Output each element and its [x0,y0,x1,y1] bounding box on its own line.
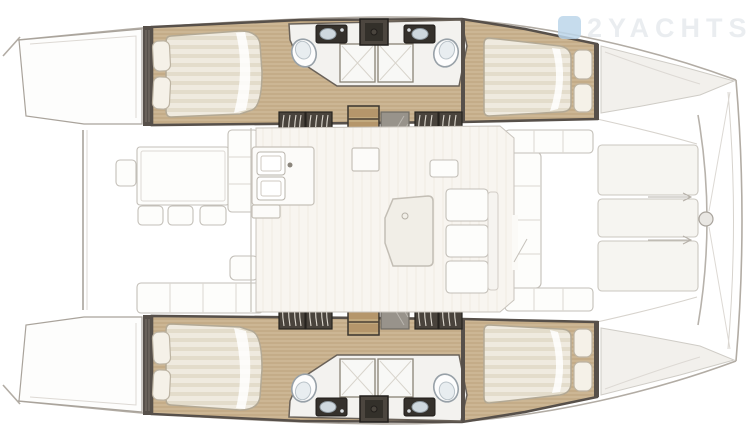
cockpit-chair [168,206,193,225]
cockpit-seat [230,256,258,280]
forepeak [601,46,734,113]
cabin-bulkhead [461,20,465,122]
salon-table [385,196,433,266]
bow-outline [736,80,742,361]
floor-plan-canvas: catamaran-top-view Aft cockpit: dining t… [0,0,750,441]
settee-backrest [488,192,498,290]
foredeck-panel [598,199,698,237]
forward-cockpit: Forward cockpit C-shaped seating [505,130,593,311]
watermark: 2YACHTS [558,13,750,43]
windlass-fitting [699,212,713,226]
stern-line-port [3,37,20,56]
galley-counter [252,205,280,218]
forward-door-opening [512,215,518,270]
aft-cabin-bed [152,31,262,117]
sink-unit [316,25,347,43]
forepeak-bulkhead [594,44,599,120]
cockpit-table [137,147,229,205]
forward-bench-bottom [505,288,593,311]
foredeck: Foredeck panels, bow crossbeam and windl… [598,92,730,349]
transom-wall [143,26,152,126]
watermark-brand-text: 2YACHTS [587,13,750,43]
stern-line-starboard [3,385,20,404]
foredeck-panel [598,241,698,291]
watermark-logo-square [558,16,581,39]
faucet [288,163,293,168]
shower-stall [340,44,375,82]
aft-cockpit: Aft cockpit: dining table, four chairs, … [83,130,263,313]
salon: Salon: galley with twin sinks, chart tab… [251,126,527,312]
deck-hatch [360,19,388,45]
sink-unit [404,25,435,43]
foredeck-panel [598,145,698,195]
galley-sink [257,152,285,175]
galley-island [352,148,379,171]
forward-bench-top [505,130,593,153]
yacht-floor-plan: catamaran-top-view Aft cockpit: dining t… [0,0,750,441]
cockpit-chair [116,160,136,186]
galley-sink [257,177,285,200]
settee-cushion [430,160,458,177]
cockpit-bench-aft [137,283,263,313]
cockpit-chair [200,206,226,225]
cockpit-chair [138,206,163,225]
shower-stall [378,44,413,82]
